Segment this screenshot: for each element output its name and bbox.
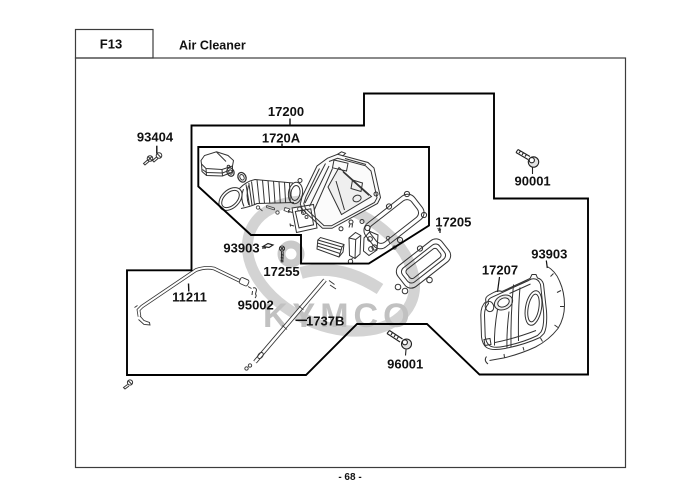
svg-text:95002: 95002 bbox=[238, 298, 274, 313]
svg-text:- 68 -: - 68 - bbox=[338, 472, 361, 483]
svg-text:11211: 11211 bbox=[172, 290, 207, 305]
svg-text:90001: 90001 bbox=[515, 174, 551, 189]
svg-text:17200: 17200 bbox=[268, 104, 304, 119]
svg-text:96001: 96001 bbox=[387, 357, 423, 372]
svg-text:1720A: 1720A bbox=[262, 131, 301, 146]
svg-text:17205: 17205 bbox=[435, 215, 471, 230]
svg-text:93903: 93903 bbox=[531, 247, 567, 262]
svg-text:Air Cleaner: Air Cleaner bbox=[179, 39, 246, 53]
svg-text:F13: F13 bbox=[100, 37, 122, 52]
svg-text:93404: 93404 bbox=[137, 130, 174, 145]
svg-text:93903: 93903 bbox=[223, 241, 259, 256]
svg-text:1737B: 1737B bbox=[306, 314, 344, 329]
svg-text:17255: 17255 bbox=[263, 264, 299, 279]
svg-text:17207: 17207 bbox=[482, 263, 518, 278]
